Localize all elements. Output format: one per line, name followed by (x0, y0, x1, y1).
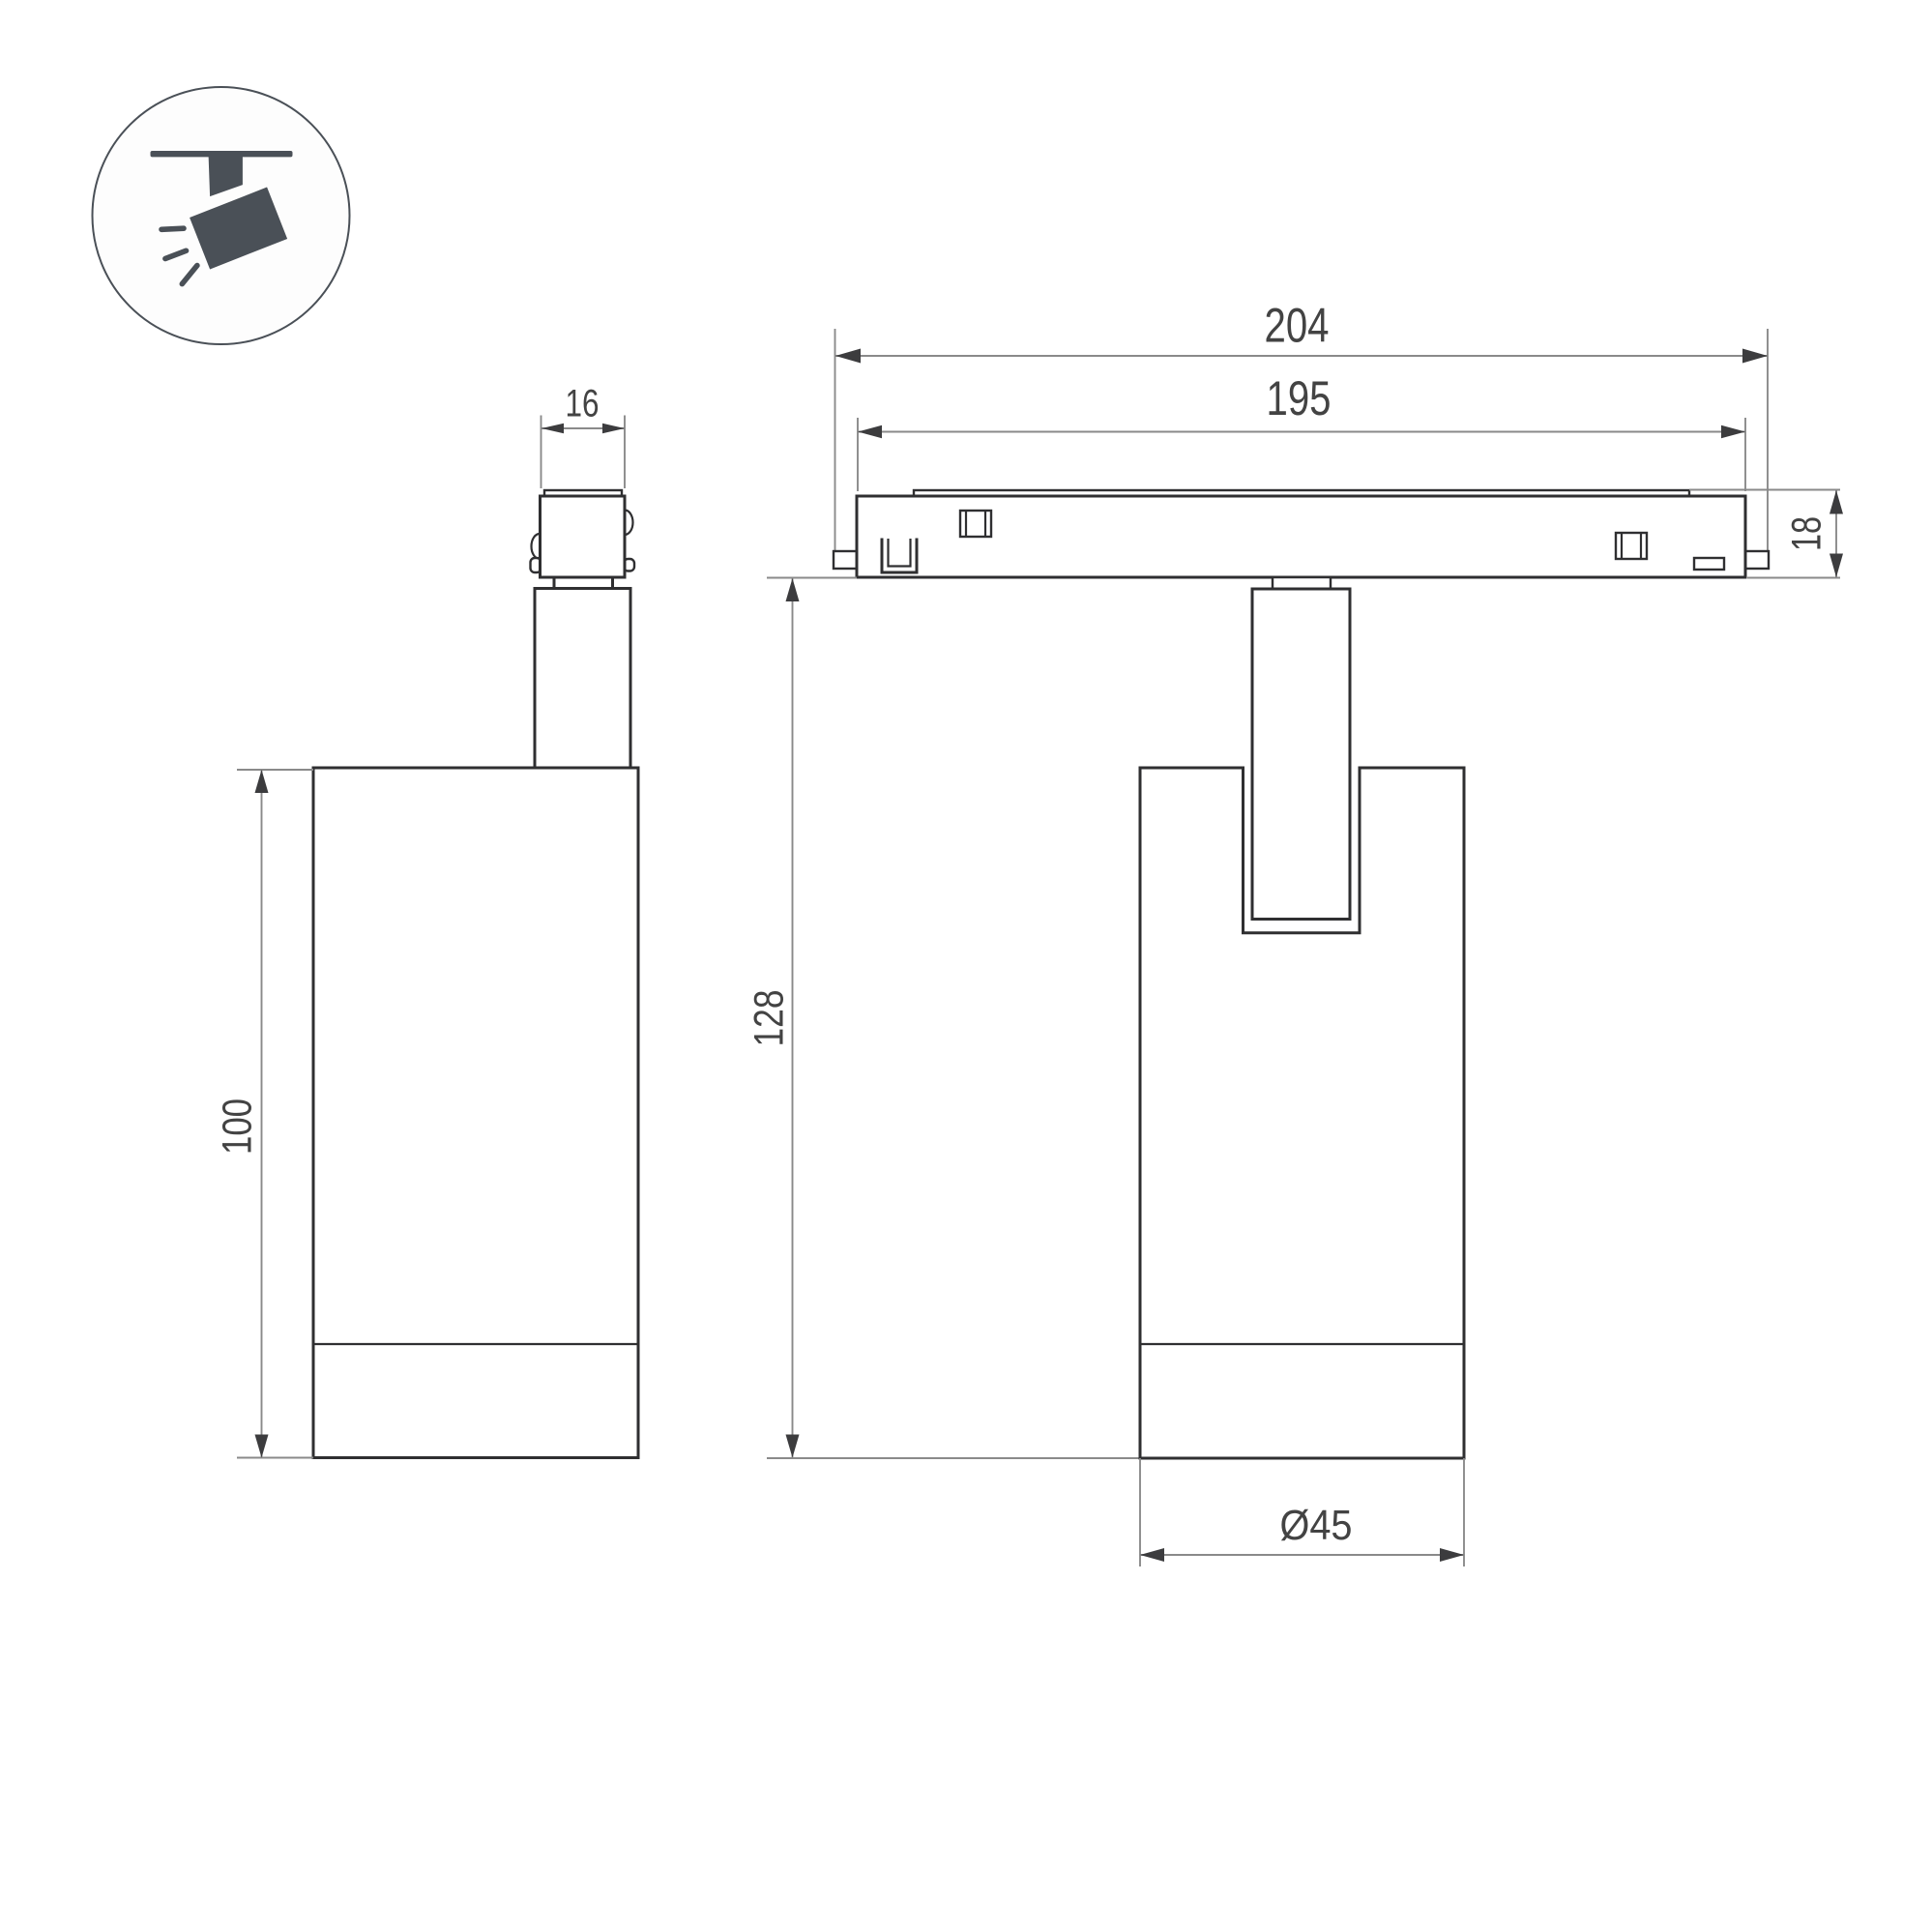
svg-text:18: 18 (1784, 516, 1830, 551)
svg-text:195: 195 (1267, 371, 1332, 425)
svg-text:204: 204 (1265, 299, 1330, 353)
svg-text:100: 100 (215, 1098, 261, 1155)
svg-text:16: 16 (566, 383, 600, 425)
svg-text:128: 128 (746, 990, 793, 1047)
svg-text:Ø45: Ø45 (1280, 1502, 1353, 1549)
